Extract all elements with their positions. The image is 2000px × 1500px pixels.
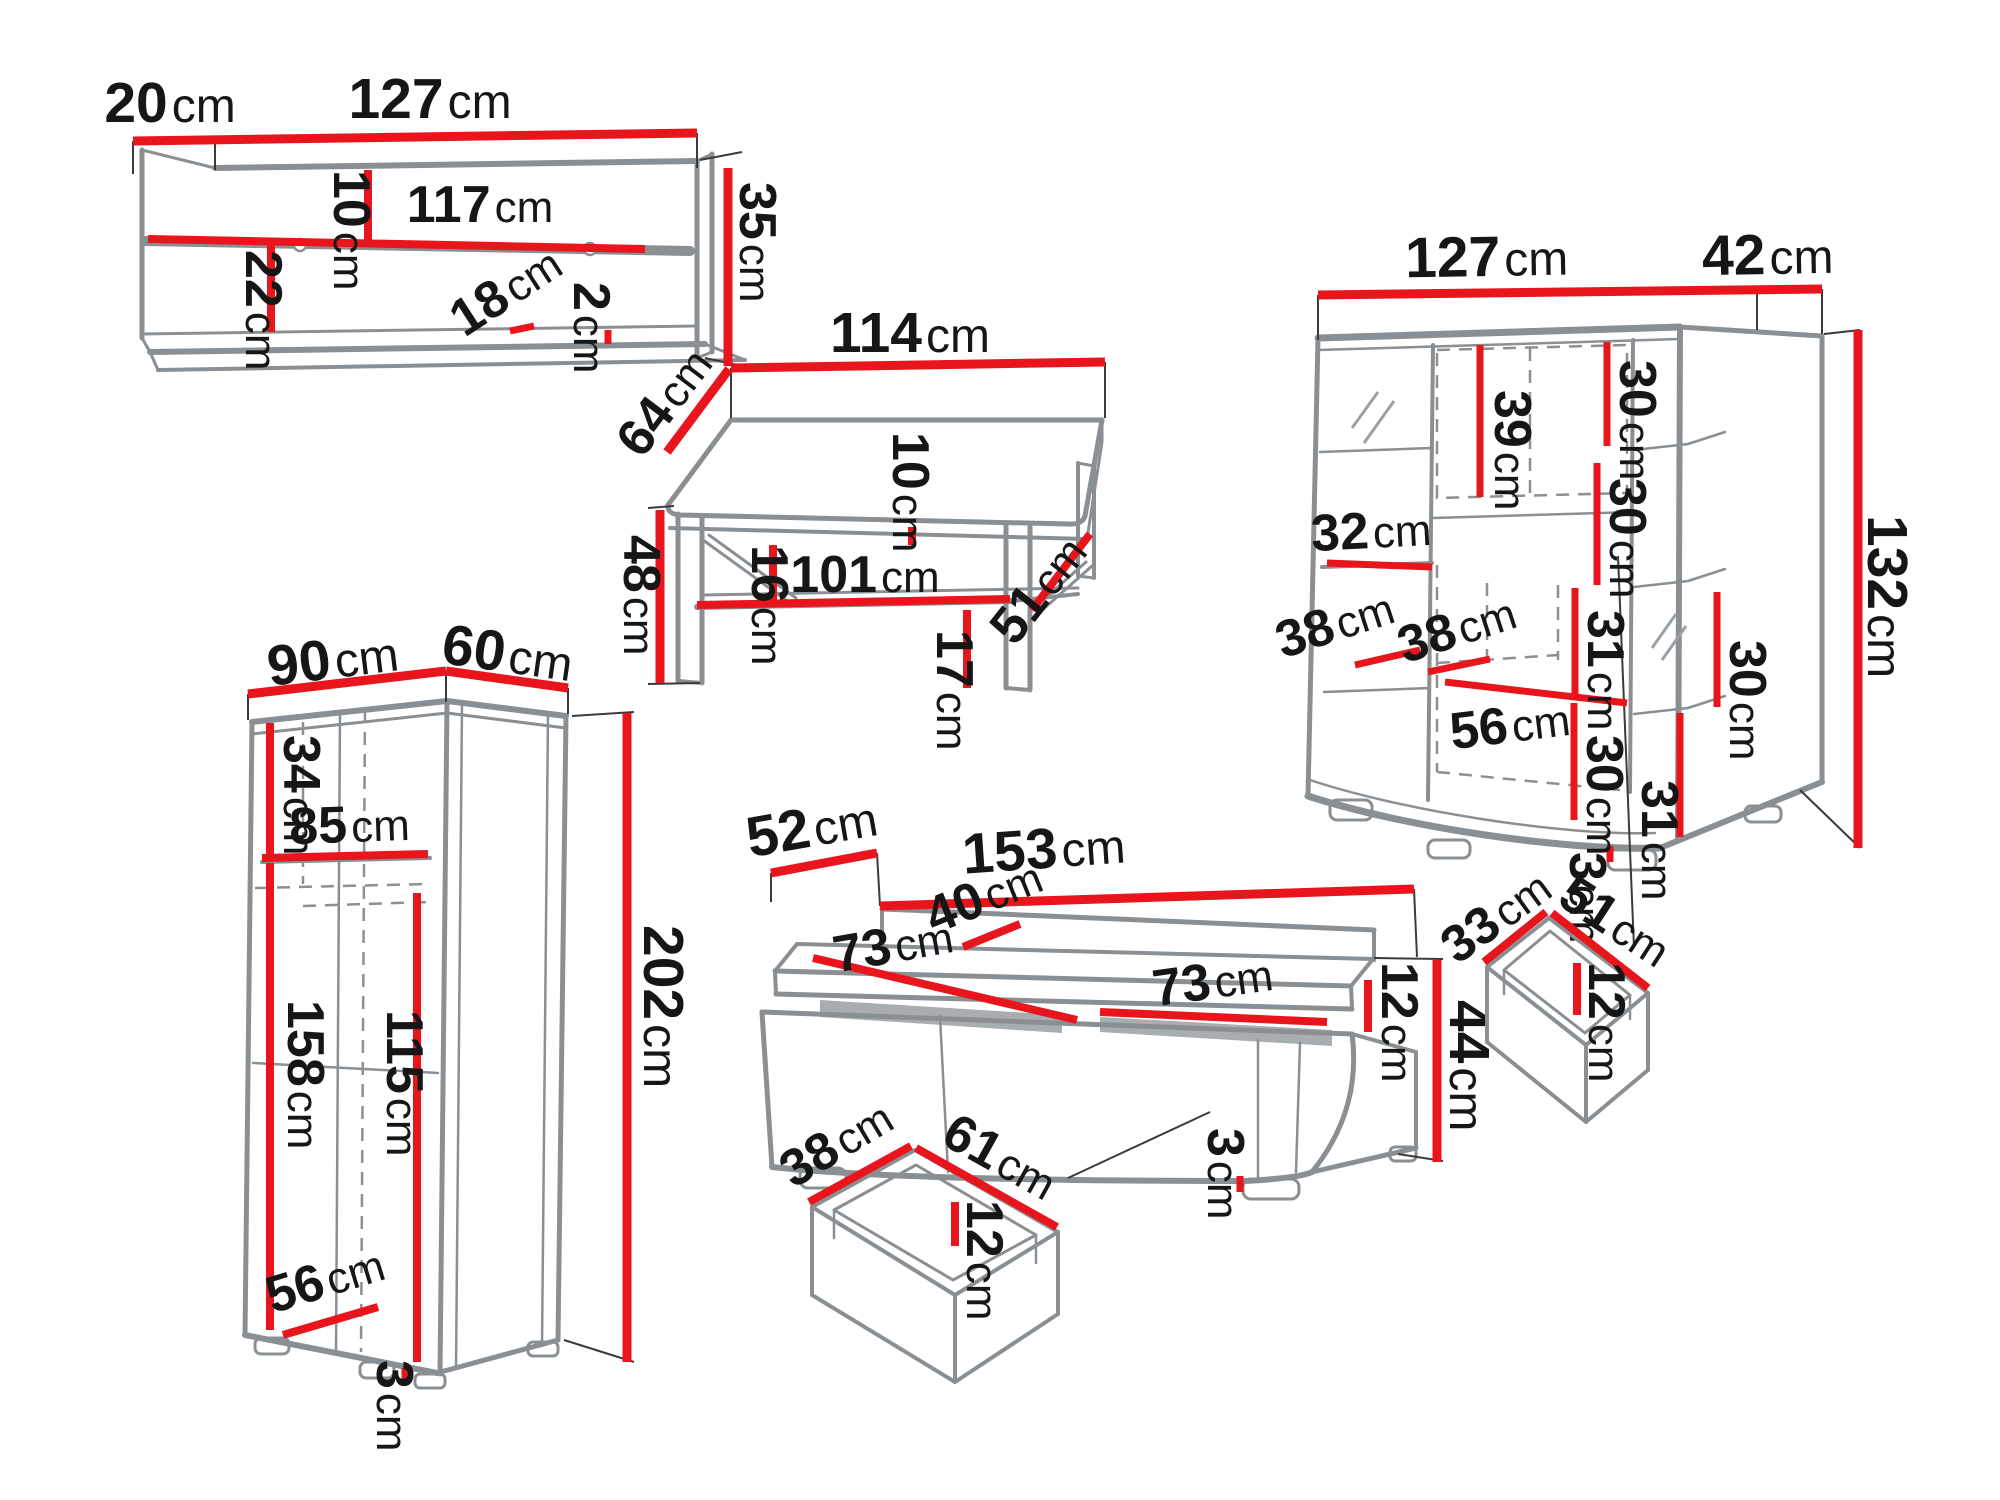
dim-coffee-table-width: 114cm — [830, 301, 990, 365]
dim-bookcase-shelf-32: 32cm — [1309, 499, 1432, 563]
dim-bookcase-niche-39: 39cm — [1483, 390, 1541, 511]
dim-drawer-tv-height: 12cm — [955, 1200, 1013, 1321]
dim-wardrobe-depth: 60cm — [438, 612, 577, 694]
dim-wardrobe-inner-width: 85cm — [288, 794, 410, 856]
dim-bookcase-niche-31-a: 31cm — [1576, 610, 1634, 731]
drawer-tv: 38cm 61cm 12cm — [770, 1088, 1067, 1382]
glass-hatch-icon — [1352, 392, 1378, 428]
dim-wall-shelf-height: 35cm — [728, 182, 786, 303]
dim-tv-stand-riser-height: 12cm — [1370, 962, 1428, 1083]
dim-bookcase-width: 127cm — [1405, 224, 1569, 291]
dim-drawer-bookcase-height: 12cm — [1577, 962, 1635, 1083]
dim-tv-stand-height: 44cm — [1437, 1000, 1501, 1131]
dim-bookcase-niche-30-a: 30cm — [1608, 360, 1666, 481]
dim-bookcase-depth: 42cm — [1701, 222, 1833, 288]
dim-tv-stand-feet-height: 3cm — [1196, 1128, 1254, 1220]
wardrobe: 90cm 60cm 202cm 34cm 85cm 158cm 115cm 56… — [245, 612, 695, 1451]
dim-wardrobe-inner-height: 115cm — [375, 1010, 433, 1157]
dim-wardrobe-feet-height: 3cm — [365, 1360, 423, 1452]
dim-wardrobe-height: 202cm — [631, 925, 695, 1088]
dim-bookcase-niche-30-b: 30cm — [1598, 478, 1656, 599]
dim-wall-shelf-depth: 20cm — [104, 71, 235, 135]
dim-coffee-table-floor-clearance: 17cm — [925, 630, 983, 751]
dim-bookcase-height: 132cm — [1855, 515, 1919, 678]
leader-line-tv-drawer — [1068, 1112, 1210, 1178]
dim-bookcase-niche-30-d: 30cm — [1575, 735, 1633, 856]
furniture-dimensions-diagram: 20cm 127cm 35cm 10cm 117cm 22cm 18cm 2cm — [0, 0, 2000, 1500]
dim-wall-shelf-board-thickness: 2cm — [562, 282, 620, 374]
dim-bookcase-niche-56: 56cm — [1447, 689, 1574, 761]
dim-coffee-table-top-thickness: 10cm — [881, 432, 939, 553]
dim-bookcase-shelf-38-b: 38cm — [1390, 583, 1523, 675]
dim-wardrobe-width: 90cm — [264, 619, 402, 699]
dim-wall-shelf-width: 127cm — [348, 67, 511, 131]
furniture-dimensions-page: 20cm 127cm 35cm 10cm 117cm 22cm 18cm 2cm — [0, 0, 2000, 1500]
dim-wall-shelf-bottom-gap: 22cm — [234, 250, 292, 371]
dim-bookcase-niche-30-c: 30cm — [1718, 640, 1776, 761]
dim-wall-shelf-inner-width: 117cm — [407, 176, 554, 234]
dim-coffee-table-shelf-width: 101cm — [790, 546, 939, 604]
dim-wardrobe-door-height: 158cm — [276, 1000, 334, 1149]
wall-shelf: 20cm 127cm 35cm 10cm 117cm 22cm 18cm 2cm — [104, 67, 786, 374]
coffee-table: 114cm 64cm 48cm 16cm 101cm 10cm 51cm 17c… — [605, 301, 1105, 751]
bookcase: 127cm 42cm 132cm 39cm 30cm 30cm 32cm 31c… — [1268, 222, 1919, 948]
